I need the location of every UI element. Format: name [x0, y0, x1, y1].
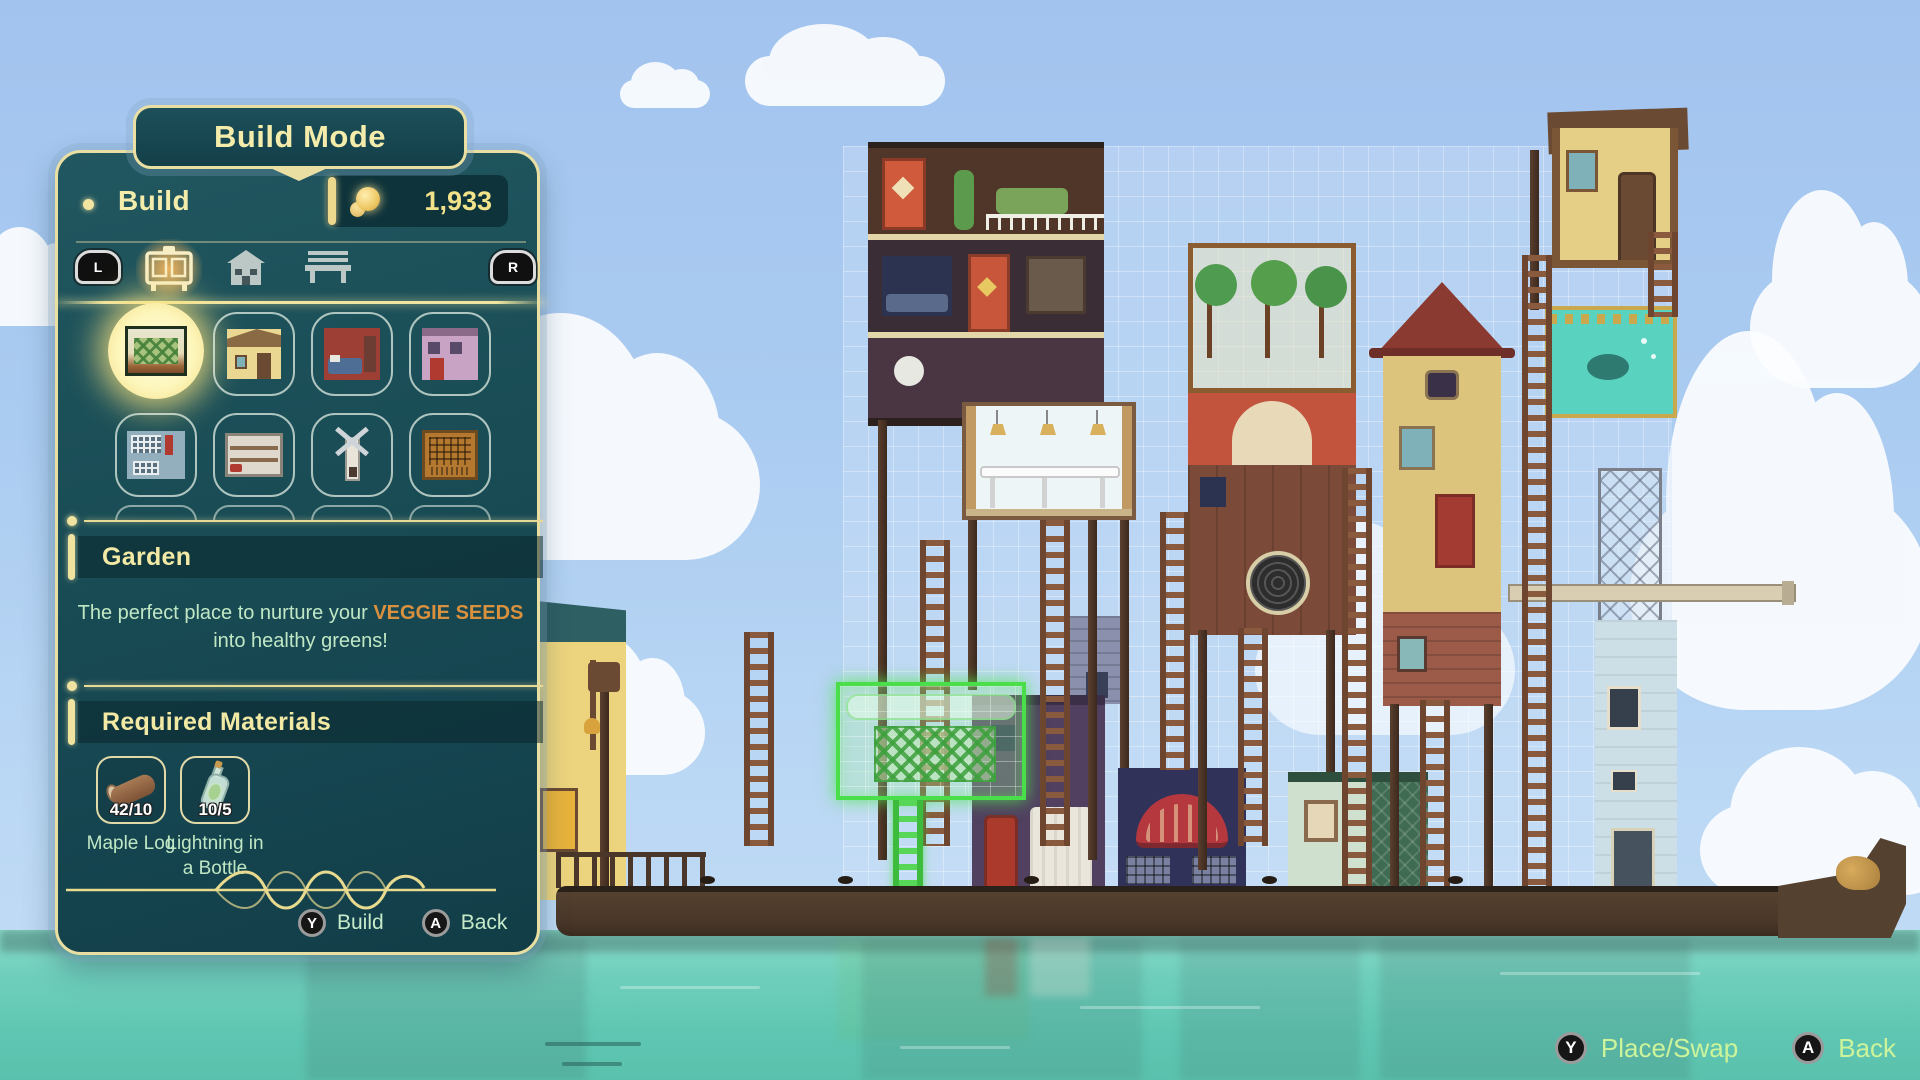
ladder	[744, 632, 774, 846]
a-button-label: A	[430, 915, 441, 932]
controller-hints: Y Place/Swap A Back	[1555, 1032, 1896, 1064]
y-button[interactable]: Y	[1555, 1032, 1587, 1064]
r-shoulder-label: R	[508, 259, 518, 275]
gable-roof	[1376, 282, 1508, 354]
thumb-accent	[230, 464, 242, 472]
y-button[interactable]: Y	[298, 909, 326, 937]
window	[1200, 477, 1226, 507]
house-gable	[1383, 352, 1501, 706]
bubble	[1641, 338, 1647, 344]
thumb-wardrobe	[364, 336, 376, 372]
deck-cleat	[1448, 876, 1463, 884]
material-card-maple-log: 42/10	[96, 756, 166, 824]
ladder	[1648, 232, 1678, 317]
cat-face	[894, 356, 924, 386]
stilt	[1120, 520, 1129, 768]
terrace-railing	[986, 214, 1104, 230]
window	[1399, 426, 1435, 470]
bedroom-thumbnail	[324, 328, 380, 380]
divider-glow	[55, 301, 546, 304]
pale-tower	[1595, 620, 1677, 908]
build-mode-header: Build Mode	[133, 105, 467, 169]
currency-value: 1,933	[424, 186, 492, 217]
stilt	[968, 520, 977, 690]
currency-accent-bar	[328, 177, 336, 225]
rooms-thumbnail	[127, 431, 185, 479]
tab-decorations[interactable]	[304, 249, 352, 287]
heart-door	[1435, 494, 1475, 568]
divider	[84, 685, 543, 687]
table-leg	[1042, 478, 1047, 508]
material-count: 10/5	[182, 800, 248, 820]
description-text: The perfect place to nurture your	[78, 602, 374, 624]
framed-window	[1026, 256, 1086, 314]
boat-hull	[556, 886, 1886, 936]
beam-end	[1782, 581, 1794, 605]
item-description: The perfect place to nurture your VEGGIE…	[68, 599, 533, 655]
item-slot-garden-selected[interactable]	[108, 303, 204, 399]
attic-window	[1425, 370, 1459, 400]
thumb-grid-window	[131, 435, 161, 453]
green-couch	[996, 188, 1068, 214]
arch-band	[1188, 393, 1356, 465]
section-accent-bar	[68, 534, 75, 580]
panel-tab-title: Build	[118, 185, 190, 217]
loom-thumbnail	[225, 433, 283, 477]
divider-dot-icon	[67, 681, 77, 691]
water-streak	[1080, 1006, 1260, 1009]
l-shoulder-label: L	[94, 259, 103, 275]
tree-trunk	[1319, 300, 1324, 358]
item-slot[interactable]	[213, 312, 295, 396]
description-highlight: VEGGIE SEEDS	[373, 602, 523, 624]
build-action-label: Build	[337, 911, 384, 935]
grey-turret	[1070, 616, 1126, 704]
item-slot-partial[interactable]	[115, 505, 197, 521]
thumb-door	[430, 358, 444, 380]
place-swap-label: Place/Swap	[1601, 1033, 1738, 1064]
tree-trunk	[1265, 300, 1270, 358]
item-slot[interactable]	[311, 312, 393, 396]
tree-trunk	[1207, 300, 1212, 358]
description-text-line2: into healthy greens!	[68, 627, 533, 655]
build-panel: Build 1,933 L	[55, 150, 540, 955]
house-thumbnail	[227, 329, 281, 379]
grille-window	[1126, 856, 1170, 884]
dining-room	[962, 402, 1136, 520]
r-shoulder-button[interactable]: R	[490, 250, 536, 284]
item-slot[interactable]	[409, 312, 491, 396]
thumb-pillow	[330, 355, 340, 362]
stilt	[1198, 630, 1207, 870]
sign-fan	[1146, 804, 1218, 842]
ladder	[1420, 700, 1450, 888]
deck-railing	[556, 852, 706, 888]
thumb-roof	[227, 329, 281, 347]
tab-furniture[interactable]	[136, 239, 202, 299]
tree	[1195, 264, 1237, 306]
pendant-lamp	[990, 424, 1006, 435]
water-streak	[900, 1046, 1010, 1049]
item-slot-partial[interactable]	[213, 505, 295, 521]
deck-cleat	[838, 876, 853, 884]
item-slot-partial[interactable]	[311, 505, 393, 521]
column	[1122, 406, 1132, 516]
bubble	[1651, 354, 1656, 359]
currency-display: 1,933	[326, 175, 508, 227]
pink-building-thumbnail	[422, 328, 478, 380]
tower-orchard	[1188, 243, 1356, 635]
ripple	[545, 1042, 641, 1046]
corner-post	[1552, 128, 1560, 268]
a-button[interactable]: A	[1792, 1032, 1824, 1064]
tree	[1305, 266, 1347, 308]
ladder	[1238, 628, 1268, 846]
back-label: Back	[1838, 1033, 1896, 1064]
y-button-label: Y	[307, 915, 317, 932]
l-shoulder-button[interactable]: L	[75, 250, 121, 284]
deck-cleat	[1262, 876, 1277, 884]
ghost-roof	[846, 694, 1016, 720]
item-slot[interactable]	[409, 413, 491, 497]
y-button-label: Y	[1565, 1038, 1576, 1058]
table-leg	[990, 478, 995, 508]
thumb-fringe	[431, 467, 469, 475]
window	[1566, 150, 1598, 192]
orange-loom-thumbnail	[422, 430, 478, 480]
theater-sign	[1136, 794, 1228, 848]
orchard-room	[1188, 243, 1356, 393]
thumb-grid	[429, 437, 471, 465]
ladder	[1040, 520, 1070, 846]
thumb-grid-window	[133, 461, 159, 475]
creature	[1587, 354, 1629, 380]
bench-icon	[305, 250, 351, 286]
birdhouse	[588, 662, 620, 692]
aquarium-room	[1545, 306, 1677, 418]
a-button[interactable]: A	[422, 909, 450, 937]
item-slot[interactable]	[213, 413, 295, 497]
cloud	[745, 56, 945, 106]
garden-thumbnail	[125, 326, 187, 376]
lamp-cord	[996, 410, 998, 424]
round-vent	[1246, 551, 1310, 615]
figurehead	[1836, 856, 1880, 890]
ladder	[1342, 468, 1372, 888]
stilt	[1390, 704, 1399, 890]
ladder	[1522, 255, 1552, 905]
tree	[1251, 260, 1297, 306]
stilt	[1484, 704, 1493, 890]
thumb-door	[349, 467, 357, 477]
pendant-lamp	[1090, 424, 1106, 435]
garden-placement-ghost[interactable]	[836, 682, 1026, 800]
thumb-door	[257, 353, 271, 379]
bed	[886, 294, 948, 312]
reflection	[1180, 940, 1360, 1080]
shore-house-door	[540, 788, 578, 852]
ladder	[1160, 512, 1190, 770]
tab-structures[interactable]	[224, 247, 268, 289]
arch	[1232, 401, 1312, 465]
window	[1611, 770, 1637, 792]
a-button-label: A	[1802, 1038, 1814, 1058]
materials-title: Required Materials	[102, 708, 331, 737]
cloth-reflection	[1030, 938, 1090, 996]
pendant-lamp	[1040, 424, 1056, 435]
red-door	[984, 815, 1018, 891]
thumb-window	[235, 355, 247, 369]
table-leg	[1100, 478, 1105, 508]
bell-icon	[584, 718, 600, 734]
lamp-cord	[1046, 410, 1048, 424]
reflection	[306, 940, 586, 1080]
tower-red	[868, 148, 1104, 426]
material-count: 42/10	[98, 800, 164, 820]
brick-base	[1383, 612, 1501, 706]
lamp-cord	[1096, 410, 1098, 424]
water-streak	[1500, 972, 1700, 975]
coin-icon	[350, 187, 380, 217]
deck-cleat	[1024, 876, 1039, 884]
thumb-trellis	[134, 338, 178, 364]
cabinet-icon	[144, 246, 194, 292]
thumb-bar	[230, 458, 278, 462]
item-slot[interactable]	[115, 413, 197, 497]
item-slot[interactable]	[311, 413, 393, 497]
house-icon	[225, 248, 267, 288]
thumb-window	[450, 342, 462, 354]
ghost-trellis	[874, 726, 996, 782]
long-table	[980, 466, 1120, 478]
column	[966, 406, 976, 516]
deck-cleat	[700, 876, 715, 884]
floor	[966, 509, 1132, 516]
thumb-window	[428, 342, 440, 354]
panel-footer: Y Build A Back	[298, 909, 507, 937]
stilt	[1326, 630, 1335, 772]
cloud	[620, 80, 710, 108]
ripple	[562, 1062, 622, 1066]
material-card-lightning-bottle: 10/5	[180, 756, 250, 824]
water-streak	[620, 986, 760, 989]
thumb-roof	[422, 328, 478, 336]
item-slot-partial[interactable]	[409, 505, 491, 521]
thumb-accent	[165, 435, 173, 455]
section-accent-bar	[68, 699, 75, 745]
window	[1607, 686, 1641, 730]
divider-dot-icon	[67, 516, 77, 526]
window	[1397, 636, 1427, 672]
theater	[1118, 768, 1246, 890]
back-action-label: Back	[461, 911, 508, 935]
cactus	[954, 170, 974, 230]
item-name: Garden	[102, 543, 191, 572]
windmill-thumbnail	[324, 427, 380, 483]
divider	[84, 520, 543, 522]
build-mode-title: Build Mode	[214, 119, 386, 155]
tower-orchard-body	[1188, 465, 1356, 635]
portrait	[1304, 800, 1338, 842]
thumb-bar	[230, 446, 278, 450]
bullet-icon	[83, 199, 94, 210]
door-reflection	[985, 938, 1017, 996]
